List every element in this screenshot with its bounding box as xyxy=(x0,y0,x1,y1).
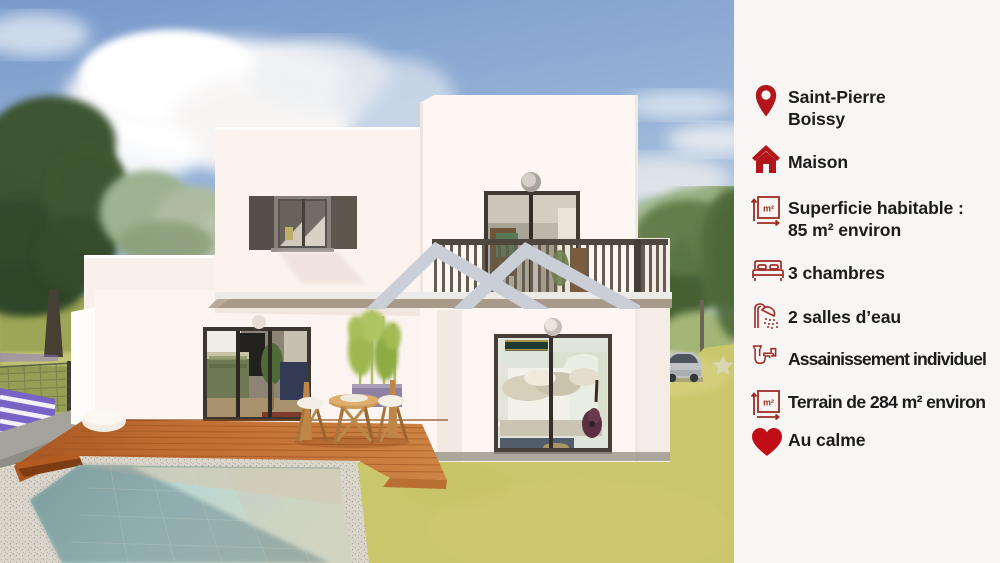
svg-text:m²: m² xyxy=(763,204,774,214)
svg-text:m²: m² xyxy=(763,398,774,408)
